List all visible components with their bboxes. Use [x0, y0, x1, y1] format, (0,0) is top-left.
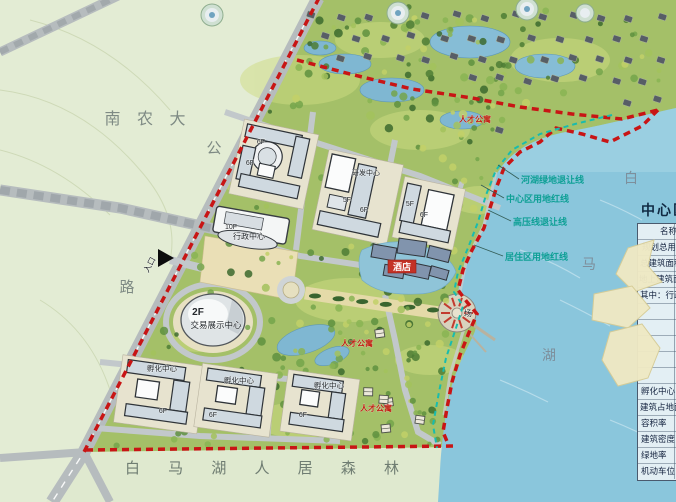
- incubator-complex-2: [194, 363, 278, 437]
- label-lake-hu: 湖: [542, 347, 556, 363]
- label-residential-red-line: 居住区用地红线: [505, 251, 568, 262]
- label-river-green-setback: 河湖绿地退让线: [521, 174, 584, 185]
- building-complex-a: [229, 119, 319, 209]
- table-row: 绿地率: [638, 448, 676, 464]
- label-incubator-center: 孵化中心: [224, 375, 254, 385]
- label-center-red-line: 中心区用地红线: [506, 193, 569, 204]
- label-incubator-center: 孵化中心: [314, 380, 344, 390]
- map-canvas: 南 农 大公路白马湖白 马 湖 人 居 森 林河湖绿地退让线中心区用地红线高压线…: [0, 0, 676, 502]
- label-highway-lu: 路: [119, 279, 140, 296]
- label-floors: 6F: [360, 207, 368, 214]
- keymap-overlay: [576, 236, 676, 414]
- site-plan-map: 南 农 大公路白马湖白 马 湖 人 居 森 林河湖绿地退让线中心区用地红线高压线…: [0, 0, 676, 502]
- label-floors: 10F: [225, 224, 237, 231]
- label-apartments: 人才公寓: [360, 403, 392, 413]
- label-floors: 5F: [343, 197, 351, 204]
- label-floors: 2F: [192, 307, 204, 318]
- label-apartments: 人才公寓: [459, 114, 491, 124]
- label-baimahu-forest: 白 马 湖 人 居 森 林: [125, 460, 411, 477]
- label-incubator-center: 孵化中心: [147, 363, 177, 373]
- label-rd-center: 研发中心: [352, 168, 380, 177]
- label-hotel: 酒店: [393, 261, 411, 272]
- table-row: 容积率: [638, 416, 676, 432]
- label-floors: 6F: [420, 212, 428, 219]
- label-lake-bai: 白: [624, 170, 638, 186]
- label-floors: 6F: [159, 408, 167, 415]
- building-complex-b: [312, 149, 403, 245]
- label-nannongda: 南 农 大: [105, 110, 192, 128]
- label-trade-exhibition-center: 交易展示中心: [190, 320, 242, 330]
- label-apartments: 人才公寓: [341, 338, 373, 348]
- label-floors: 5F: [406, 201, 414, 208]
- label-highway-gong: 公: [206, 140, 227, 157]
- label-plaza: 场: [464, 309, 472, 318]
- label-floors: 6F: [257, 139, 265, 146]
- table-row: 建筑密度: [638, 432, 676, 448]
- label-admin-center: 行政中心: [233, 231, 265, 241]
- label-floors: 6F: [299, 412, 307, 419]
- table-row: 机动车位: [638, 464, 676, 480]
- panel-title: 中心区: [641, 200, 676, 220]
- label-hv-setback: 高压线退让线: [513, 216, 567, 227]
- label-floors: 6F: [246, 160, 254, 167]
- label-floors: 6F: [209, 412, 217, 419]
